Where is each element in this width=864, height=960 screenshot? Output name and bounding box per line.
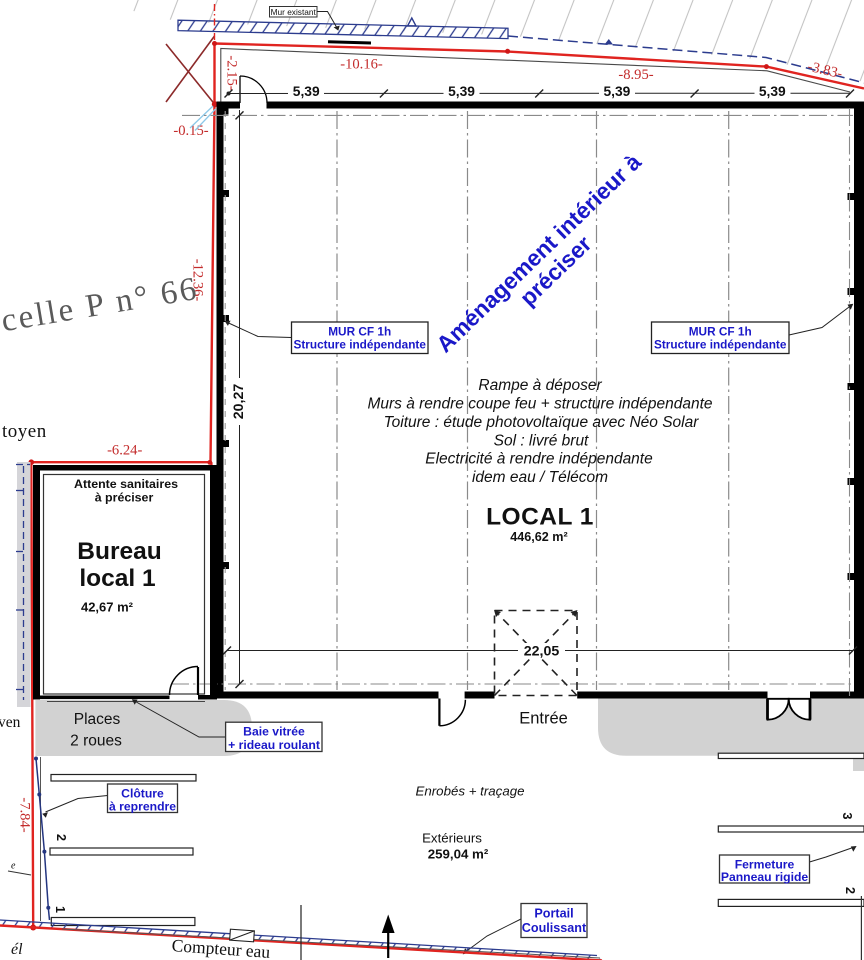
svg-text:à reprendre: à reprendre [109,800,176,814]
svg-text:-8.95-: -8.95- [618,67,653,83]
svg-text:-2.15-: -2.15- [224,55,240,90]
svg-text:3: 3 [840,813,854,820]
svg-text:Structure indépendante: Structure indépendante [293,338,426,352]
svg-text:Electricité à rendre indépenda: Electricité à rendre indépendante [425,451,653,468]
svg-text:idem eau / Télécom: idem eau / Télécom [472,469,608,486]
svg-text:2: 2 [54,834,68,841]
svg-text:Mur existant: Mur existant [271,7,317,17]
svg-text:Enrobés + traçage: Enrobés + traçage [415,784,524,799]
svg-text:5,39: 5,39 [293,84,320,99]
svg-text:-0.15-: -0.15- [173,123,208,139]
svg-text:-6.24-: -6.24- [107,443,142,459]
svg-text:e: e [11,861,16,872]
svg-text:celle P n° 66: celle P n° 66 [0,271,201,339]
svg-text:1: 1 [53,906,67,913]
svg-text:Clôture: Clôture [121,787,164,801]
svg-text:à préciser: à préciser [95,491,154,505]
svg-text:local 1: local 1 [79,565,155,592]
svg-text:42,67 m²: 42,67 m² [81,600,134,615]
svg-text:259,04 m²: 259,04 m² [428,847,489,862]
svg-text:él: él [11,941,23,958]
svg-text:toyen: toyen [2,421,47,442]
svg-text:+ rideau roulant: + rideau roulant [228,738,320,752]
svg-text:20,27: 20,27 [231,384,247,420]
svg-text:MUR CF 1h: MUR CF 1h [689,324,752,338]
svg-text:5,39: 5,39 [448,84,475,99]
svg-text:5,39: 5,39 [603,84,630,99]
svg-text:ven: ven [0,714,21,731]
svg-text:Portail: Portail [534,907,573,921]
svg-text:Bureau: Bureau [77,538,161,565]
svg-text:2: 2 [843,887,857,894]
svg-text:2 roues: 2 roues [70,733,122,750]
svg-text:Entrée: Entrée [519,710,568,728]
svg-text:-7.84-: -7.84- [17,797,33,832]
svg-text:LOCAL 1: LOCAL 1 [486,504,594,531]
svg-text:Sol : livré brut: Sol : livré brut [494,433,589,450]
svg-text:-10.16-: -10.16- [340,57,383,73]
svg-text:Panneau rigide: Panneau rigide [721,870,809,884]
svg-text:Extérieurs: Extérieurs [422,831,482,846]
svg-text:Baie vitrée: Baie vitrée [243,725,305,739]
svg-text:Attente sanitaires: Attente sanitaires [74,477,178,491]
svg-text:Coulissant: Coulissant [522,921,587,935]
svg-text:Structure indépendante: Structure indépendante [654,338,787,352]
svg-text:Murs à rendre coupe feu + stru: Murs à rendre coupe feu + structure indé… [367,396,712,413]
svg-text:446,62 m²: 446,62 m² [510,530,567,544]
svg-text:Rampe à déposer: Rampe à déposer [478,377,602,394]
svg-text:Places: Places [74,711,121,728]
svg-text:Toiture : étude photovoltaïque: Toiture : étude photovoltaïque avec Néo … [384,414,700,431]
svg-text:5,39: 5,39 [759,84,786,99]
svg-text:Aménagement intérieur à: Aménagement intérieur à [431,148,646,357]
svg-text:MUR CF 1h: MUR CF 1h [328,324,391,338]
svg-text:22,05: 22,05 [524,644,560,660]
